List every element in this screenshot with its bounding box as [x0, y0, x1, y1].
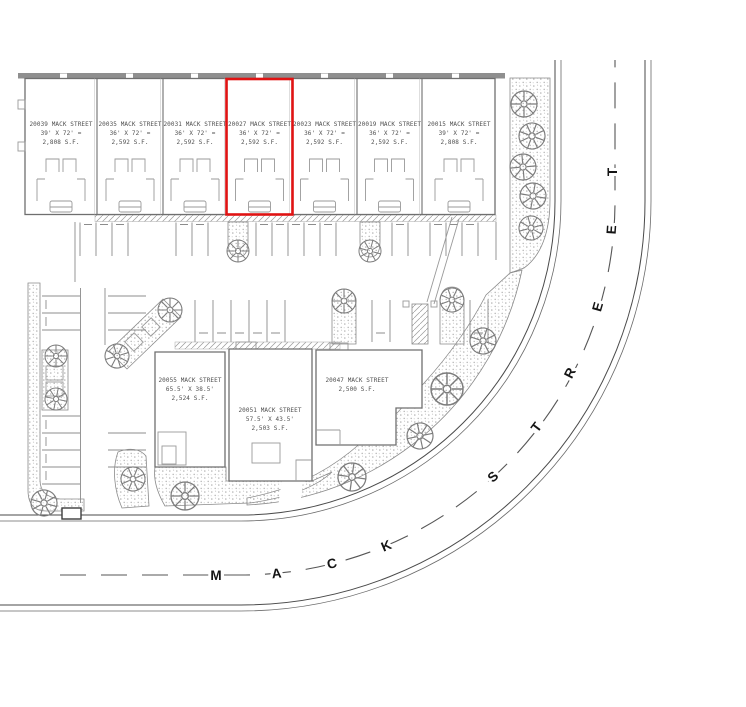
unit-area: 2,592 S.F.: [371, 139, 408, 146]
building-area: 2,500 S.F.: [338, 386, 375, 393]
unit-dims: 36' X 72' =: [110, 130, 151, 137]
unit-area: 2,592 S.F.: [306, 139, 343, 146]
townhome-building-outline: [25, 79, 495, 215]
wall-jog: [18, 100, 25, 109]
unit-dims: 39' X 72' =: [41, 130, 82, 137]
unit-dims: 36' X 72' =: [304, 130, 345, 137]
street-letter: E: [604, 225, 620, 235]
unit-dims: 36' X 72' =: [369, 130, 410, 137]
unit-address: 20015 MACK STREET: [427, 121, 490, 128]
parking-row-1: [75, 215, 496, 282]
unit-area: 2,592 S.F.: [176, 139, 213, 146]
site-plan-page: M A C K S T R E E T: [0, 0, 746, 707]
unit-address: 20023 MACK STREET: [293, 121, 356, 128]
sidewalk-hatch-band: [175, 342, 340, 349]
unit-dims: 36' X 72' =: [239, 130, 280, 137]
bollard: [403, 301, 409, 307]
building-address: 20047 MACK STREET: [325, 377, 388, 384]
street-letter: K: [379, 537, 394, 555]
street-letter: A: [271, 566, 282, 582]
site-plan-drawing: M A C K S T R E E T: [0, 0, 746, 707]
street-letter: T: [605, 167, 620, 176]
building-address: 20051 MACK STREET: [238, 407, 301, 414]
unit-area: 2,808 S.F.: [440, 139, 477, 146]
building-dims: 65.5' X 38.5': [166, 386, 214, 393]
building-20055-outline: [155, 352, 225, 467]
street-letter: S: [485, 468, 502, 485]
building-20051-outline: [229, 349, 312, 481]
unit-address: 20031 MACK STREET: [163, 121, 226, 128]
parking-row-2: [175, 217, 488, 349]
street-letter: C: [325, 555, 338, 572]
building-area: 2,524 S.F.: [171, 395, 208, 402]
utility-pad: [62, 508, 81, 519]
sidewalk-hatch-band: [95, 215, 496, 222]
unit-address: 20035 MACK STREET: [98, 121, 161, 128]
unit-address: 20019 MACK STREET: [358, 121, 421, 128]
ramp-pad: [412, 304, 428, 344]
unit-area: 2,808 S.F.: [42, 139, 79, 146]
street-letter: M: [210, 568, 221, 583]
unit-address: 20027 MACK STREET: [228, 121, 291, 128]
wall-jog: [18, 142, 25, 151]
building-area: 2,503 S.F.: [251, 425, 288, 432]
building-dims: 57.5' X 43.5': [246, 416, 294, 423]
unit-area: 2,592 S.F.: [111, 139, 148, 146]
unit-dims: 36' X 72' =: [175, 130, 216, 137]
parking-island: [360, 222, 380, 257]
street-letter: E: [589, 300, 606, 313]
street-letter: T: [528, 419, 545, 435]
townhome-row: 20039 MACK STREET 39' X 72' = 2,808 S.F.…: [18, 73, 505, 215]
unit-dims: 39' X 72' =: [439, 130, 480, 137]
unit-area: 2,592 S.F.: [241, 139, 278, 146]
unit-address: 20039 MACK STREET: [29, 121, 92, 128]
building-address: 20055 MACK STREET: [158, 377, 221, 384]
parking-island: [228, 222, 248, 257]
bed-finger: [115, 449, 149, 508]
